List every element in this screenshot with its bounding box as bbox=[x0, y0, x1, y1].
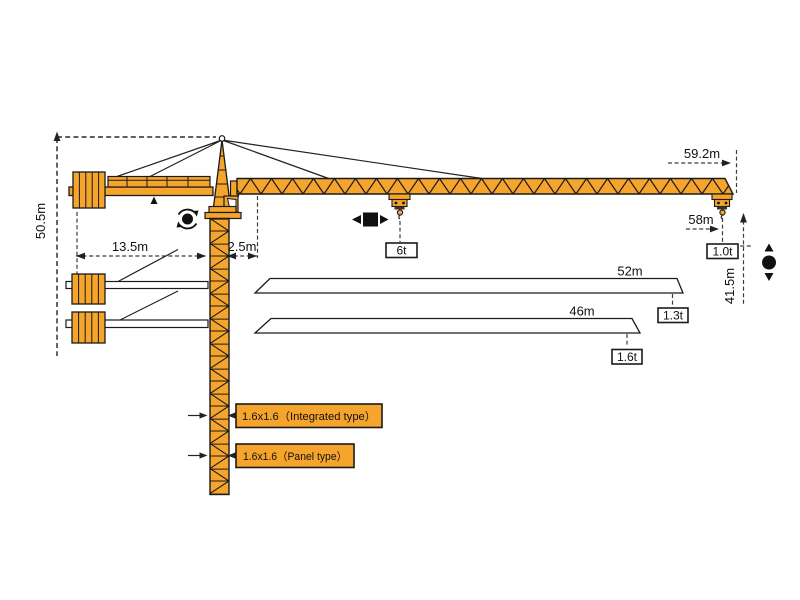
crane-load-diagram: 50.5m 13.5m 2.5m 59.2m 58m 41.5m 5 bbox=[0, 0, 800, 600]
dim-max-radius-label: 59.2m bbox=[684, 146, 720, 161]
dim-hook-height-label: 41.5m bbox=[722, 268, 737, 304]
jib-46m-length-label: 46m bbox=[569, 304, 594, 319]
trolley-frame bbox=[712, 194, 732, 200]
counterweight-stack bbox=[72, 274, 105, 304]
tip-load-label: 1.0t bbox=[712, 245, 733, 259]
dim-counter-radius-label: 13.5m bbox=[112, 239, 148, 254]
counterweight bbox=[73, 172, 105, 208]
main-jib bbox=[237, 179, 733, 195]
hoist-sheave bbox=[395, 207, 405, 210]
slewing-upper bbox=[209, 207, 236, 213]
counter-jib-deck bbox=[108, 177, 210, 188]
jib-46m-bar bbox=[255, 319, 640, 334]
mast-panel-label: 1.6x1.6（Panel type） bbox=[243, 450, 347, 463]
dim-tip-radius-label: 58m bbox=[688, 212, 713, 227]
trolley-frame bbox=[389, 194, 410, 200]
mast-integrated-label: 1.6x1.6（Integrated type） bbox=[242, 410, 376, 423]
jib-46m-tip-load: 1.6t bbox=[617, 350, 638, 364]
tower-mast bbox=[210, 219, 229, 495]
dim-slew-offset-label: 2.5m bbox=[228, 239, 257, 254]
hoist-sheave bbox=[717, 207, 727, 210]
jib-52m-bar bbox=[255, 279, 683, 294]
max-load-label: 6t bbox=[396, 244, 407, 258]
hook-icon bbox=[397, 210, 402, 215]
slewing-platform bbox=[205, 213, 241, 219]
apex-pin bbox=[219, 136, 225, 142]
canvas-background bbox=[0, 0, 800, 600]
counterweight-stack bbox=[72, 312, 105, 343]
jib-52m-length-label: 52m bbox=[617, 264, 642, 279]
jib-52m-tip-load: 1.3t bbox=[663, 309, 684, 323]
dim-total-height-label: 50.5m bbox=[33, 203, 48, 239]
hook-icon bbox=[720, 210, 725, 215]
